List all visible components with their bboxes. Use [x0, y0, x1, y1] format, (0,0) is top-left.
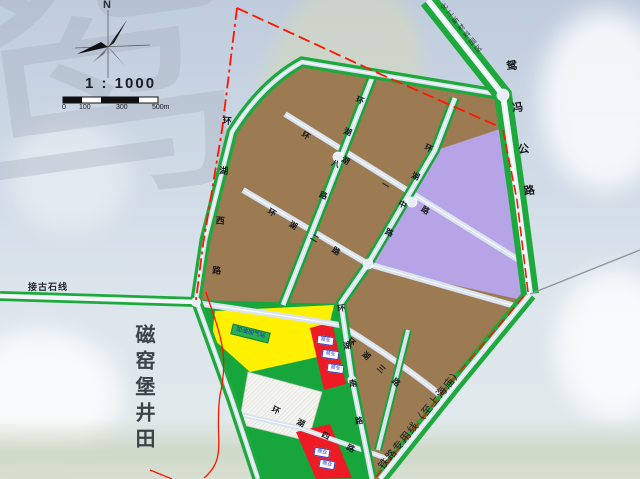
scale-tick: 100: [79, 104, 91, 111]
scale-tick: 0: [62, 104, 66, 111]
compass-north-label: N: [103, 0, 111, 11]
minefield-label: 磁窑堡井田: [133, 324, 153, 454]
railway-line: [530, 250, 640, 294]
jiegushi-road-label: 接古石线: [28, 283, 68, 292]
scale-ratio: 1 : 1000: [85, 76, 156, 91]
scale-tick: 500m: [152, 104, 170, 111]
scale-tick: 300: [116, 104, 128, 111]
jiegushi-road: [0, 296, 196, 302]
map-canvas: 鸳: [0, 0, 640, 479]
compass-rose: [75, 2, 165, 82]
